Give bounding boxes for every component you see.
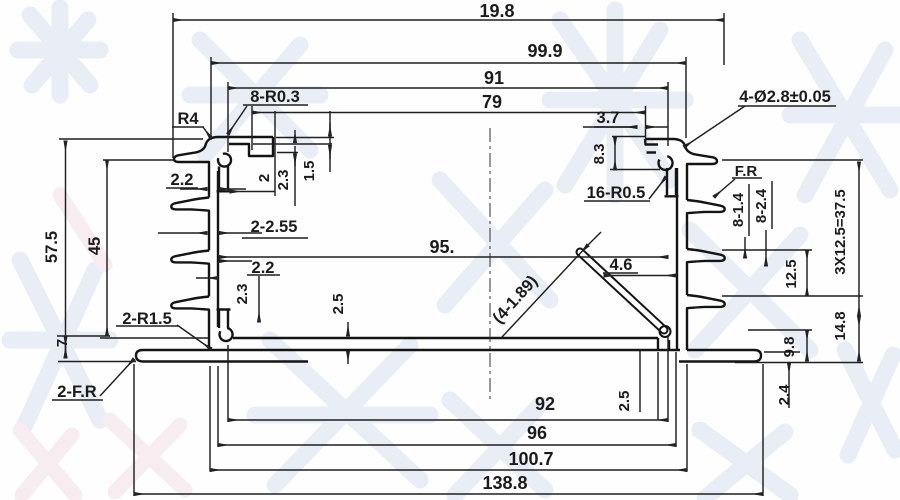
svg-text:92: 92 bbox=[535, 394, 555, 414]
svg-text:2-R1.5: 2-R1.5 bbox=[122, 310, 172, 328]
svg-text:95.: 95. bbox=[429, 237, 454, 257]
svg-text:2.3: 2.3 bbox=[234, 284, 251, 305]
svg-text:79: 79 bbox=[482, 92, 502, 112]
svg-text:3X12.5=37.5: 3X12.5=37.5 bbox=[832, 189, 849, 275]
svg-text:2: 2 bbox=[256, 174, 273, 182]
svg-text:F.R: F.R bbox=[735, 163, 758, 180]
svg-text:2-2.55: 2-2.55 bbox=[251, 218, 298, 236]
svg-text:2.4: 2.4 bbox=[776, 384, 793, 406]
svg-text:14.8: 14.8 bbox=[832, 311, 849, 340]
svg-text:100.7: 100.7 bbox=[508, 449, 553, 469]
svg-text:19.8: 19.8 bbox=[479, 1, 514, 21]
svg-text:91: 91 bbox=[484, 68, 504, 88]
svg-text:1.5: 1.5 bbox=[301, 161, 318, 182]
svg-text:16-R0.5: 16-R0.5 bbox=[587, 184, 646, 202]
svg-text:R4: R4 bbox=[177, 110, 199, 128]
svg-text:45: 45 bbox=[86, 237, 104, 255]
svg-text:9.8: 9.8 bbox=[781, 337, 798, 358]
svg-text:2.3: 2.3 bbox=[275, 170, 292, 191]
svg-text:99.9: 99.9 bbox=[527, 41, 562, 61]
svg-text:8-2.4: 8-2.4 bbox=[753, 188, 770, 223]
svg-text:(4-1.89): (4-1.89) bbox=[489, 272, 541, 327]
svg-text:8.3: 8.3 bbox=[591, 144, 608, 165]
svg-text:2-F.R: 2-F.R bbox=[57, 383, 97, 401]
svg-text:2.2: 2.2 bbox=[171, 171, 194, 189]
svg-text:2.5: 2.5 bbox=[330, 294, 347, 315]
svg-text:7: 7 bbox=[54, 339, 71, 347]
svg-text:2.5: 2.5 bbox=[616, 391, 633, 412]
svg-text:2.2: 2.2 bbox=[252, 259, 275, 277]
svg-text:8-1.4: 8-1.4 bbox=[730, 192, 747, 227]
svg-text:8-R0.3: 8-R0.3 bbox=[250, 88, 300, 106]
svg-text:12.5: 12.5 bbox=[783, 259, 800, 288]
svg-text:96: 96 bbox=[527, 423, 547, 443]
svg-text:57.5: 57.5 bbox=[43, 231, 61, 263]
svg-text:3.7: 3.7 bbox=[597, 109, 620, 127]
svg-text:4-Ø2.8±0.05: 4-Ø2.8±0.05 bbox=[739, 88, 831, 106]
svg-text:4.6: 4.6 bbox=[610, 256, 633, 274]
svg-text:138.8: 138.8 bbox=[482, 473, 527, 493]
